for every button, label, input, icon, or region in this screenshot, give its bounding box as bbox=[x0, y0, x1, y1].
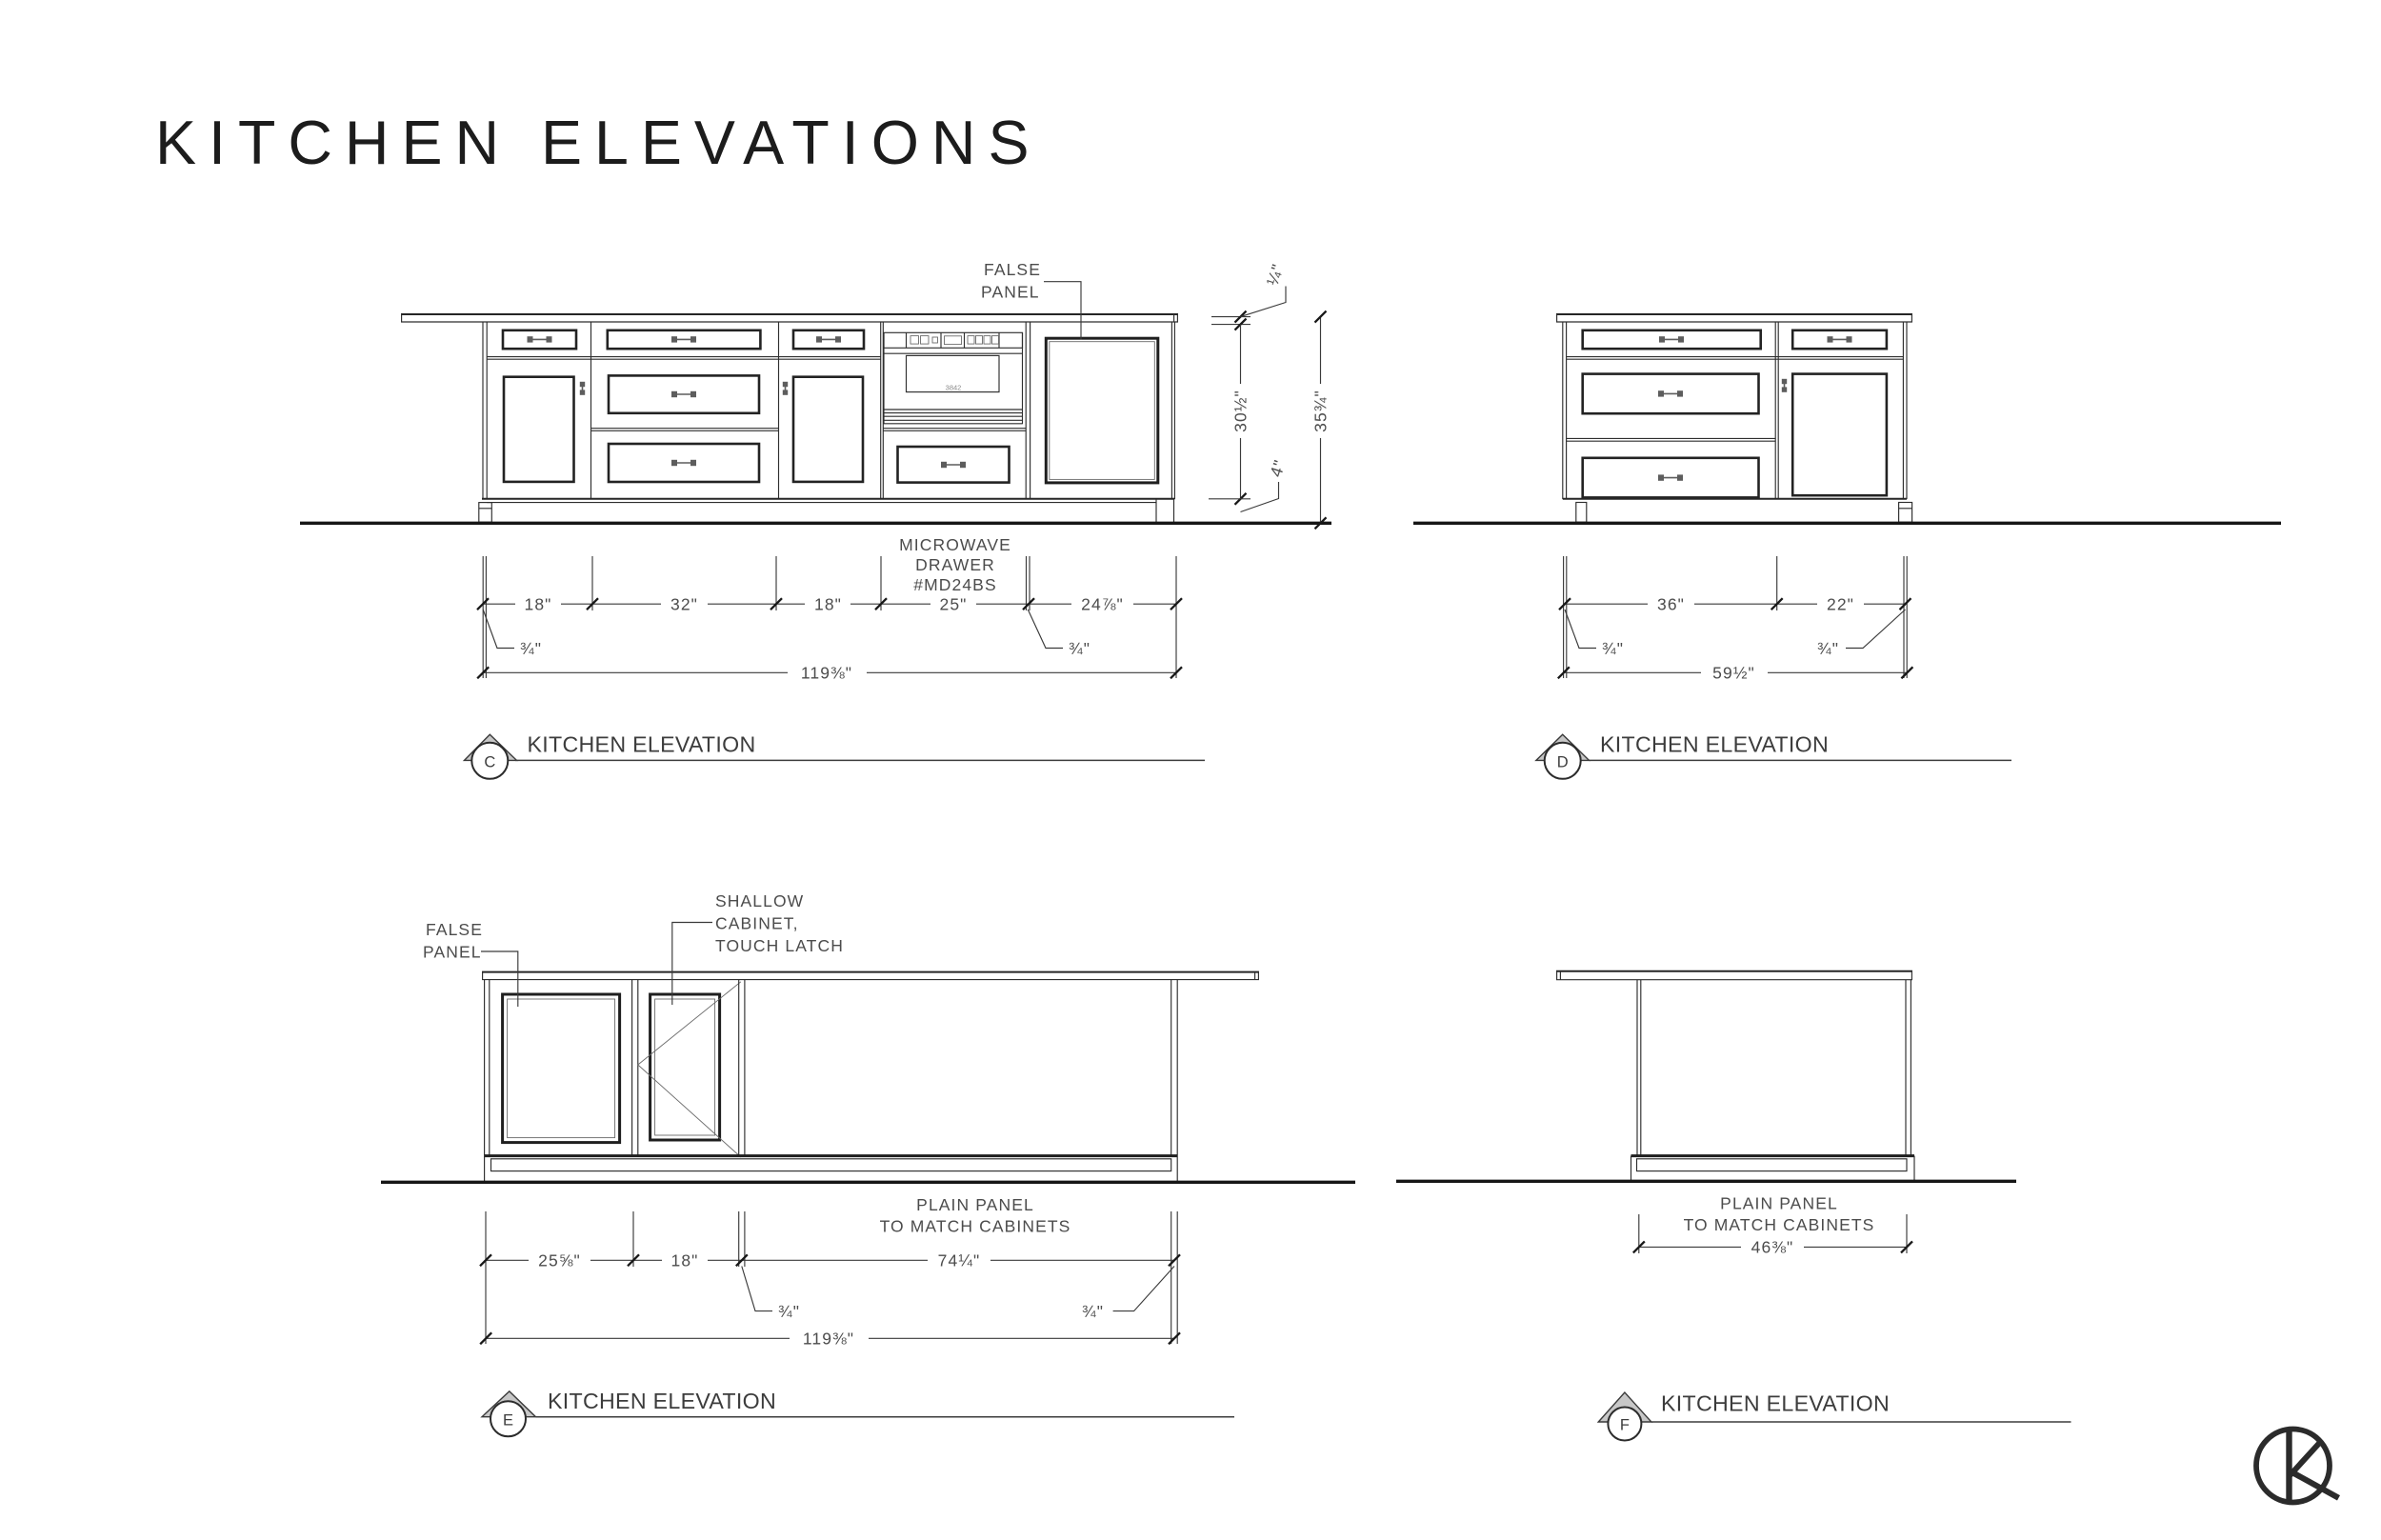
svg-text:SHALLOW: SHALLOW bbox=[715, 891, 804, 910]
svg-text:25⅝": 25⅝" bbox=[538, 1251, 581, 1270]
svg-text:#MD24BS: #MD24BS bbox=[913, 575, 996, 594]
svg-text:30½": 30½" bbox=[1231, 390, 1251, 432]
svg-text:18": 18" bbox=[671, 1251, 699, 1270]
svg-text:32": 32" bbox=[670, 595, 698, 614]
svg-text:¾": ¾" bbox=[1069, 639, 1090, 658]
svg-text:24⅞": 24⅞" bbox=[1081, 595, 1124, 614]
svg-text:TO MATCH CABINETS: TO MATCH CABINETS bbox=[1684, 1215, 1875, 1234]
svg-text:PANEL: PANEL bbox=[981, 283, 1040, 302]
svg-text:18": 18" bbox=[525, 595, 552, 614]
svg-text:PLAIN PANEL: PLAIN PANEL bbox=[916, 1195, 1034, 1214]
svg-text:F: F bbox=[1620, 1417, 1630, 1434]
svg-text:¾": ¾" bbox=[778, 1302, 800, 1321]
svg-text:¾": ¾" bbox=[1817, 639, 1839, 658]
svg-text:E: E bbox=[503, 1411, 513, 1429]
svg-text:PANEL: PANEL bbox=[423, 943, 482, 962]
svg-text:35¾": 35¾" bbox=[1311, 390, 1331, 432]
svg-text:KITCHEN ELEVATION: KITCHEN ELEVATION bbox=[548, 1389, 776, 1413]
svg-text:59½": 59½" bbox=[1712, 664, 1755, 683]
svg-text:KITCHEN ELEVATION: KITCHEN ELEVATION bbox=[528, 732, 756, 757]
svg-text:46⅜": 46⅜" bbox=[1751, 1238, 1794, 1257]
svg-text:C: C bbox=[484, 753, 495, 770]
svg-text:¾": ¾" bbox=[1082, 1302, 1104, 1321]
svg-text:PLAIN PANEL: PLAIN PANEL bbox=[1720, 1194, 1838, 1213]
svg-text:FALSE: FALSE bbox=[426, 920, 483, 939]
svg-text:TOUCH LATCH: TOUCH LATCH bbox=[715, 936, 844, 955]
svg-text:74¼": 74¼" bbox=[938, 1251, 981, 1270]
svg-text:TO MATCH CABINETS: TO MATCH CABINETS bbox=[880, 1217, 1071, 1236]
svg-text:25": 25" bbox=[940, 595, 968, 614]
svg-text:CABINET,: CABINET, bbox=[715, 914, 799, 933]
svg-text:22": 22" bbox=[1827, 595, 1854, 614]
svg-text:119⅜": 119⅜" bbox=[801, 664, 852, 683]
svg-text:¾": ¾" bbox=[520, 639, 542, 658]
svg-text:DRAWER: DRAWER bbox=[915, 555, 995, 574]
svg-text:D: D bbox=[1557, 753, 1569, 770]
svg-text:¾": ¾" bbox=[1602, 639, 1624, 658]
svg-text:3842: 3842 bbox=[946, 384, 962, 392]
svg-text:KITCHEN ELEVATION: KITCHEN ELEVATION bbox=[1661, 1391, 1890, 1416]
svg-text:MICROWAVE: MICROWAVE bbox=[899, 535, 1011, 554]
svg-text:119⅜": 119⅜" bbox=[803, 1330, 854, 1349]
svg-text:36": 36" bbox=[1657, 595, 1685, 614]
svg-text:18": 18" bbox=[814, 595, 842, 614]
svg-text:KITCHEN ELEVATION: KITCHEN ELEVATION bbox=[1600, 732, 1829, 757]
svg-text:KITCHEN ELEVATIONS: KITCHEN ELEVATIONS bbox=[155, 109, 1042, 177]
svg-text:FALSE: FALSE bbox=[984, 260, 1041, 279]
